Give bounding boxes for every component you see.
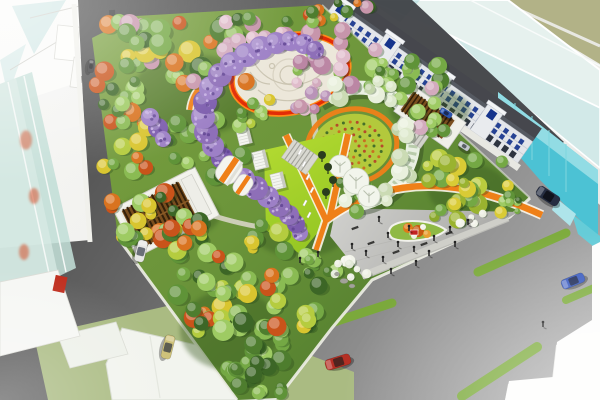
wisteria-floret [152,131,155,134]
tree-highlight [427,119,433,125]
flower-dot [381,145,384,148]
island-shrub-highlight [424,231,428,235]
tree-highlight [251,357,259,365]
tree-highlight [247,236,255,244]
pedestrian-head [542,321,545,324]
tree-highlight [340,195,348,203]
tree-highlight [439,125,446,132]
wisteria-floret-dark [280,204,283,207]
wisteria-floret [272,210,275,213]
wisteria-floret-dark [209,148,212,151]
tree-highlight [192,221,201,230]
wisteria-floret [215,74,218,77]
wisteria-floret [261,182,264,185]
flower-dot [371,139,374,142]
red-reflection [29,188,39,204]
tree-highlight [456,219,461,224]
car-hood [89,60,93,63]
rendering-canvas: Aerial perspective rendering of an urban… [0,0,600,400]
tree-highlight [218,43,227,52]
tree-highlight [504,191,510,197]
wisteria-floret [297,41,300,44]
tree-highlight [195,317,203,325]
flower-dot [377,134,380,137]
wisteria-floret [288,216,291,219]
wisteria-floret [206,99,209,102]
tree-highlight [423,174,431,182]
wisteria-floret-dark [227,150,230,153]
wisteria-floret-dark [318,47,321,50]
tree-highlight [387,82,393,88]
wisteria-floret [249,170,252,173]
wisteria-floret-dark [257,49,260,52]
wisteria-floret [211,109,214,112]
wisteria-floret-dark [207,133,210,136]
wisteria-floret-dark [232,60,235,63]
flower-dot [325,131,328,134]
wisteria-floret [287,36,290,39]
tree-highlight [365,84,371,90]
flower-dot [380,139,383,142]
tree-highlight [240,285,251,296]
wisteria-floret [287,43,290,46]
art-tree-crown [329,176,337,184]
tree-highlight [231,364,237,370]
tree-highlight [213,251,220,258]
wisteria-floret [205,139,208,142]
tree-highlight [120,59,129,68]
tree-highlight [182,157,189,164]
wisteria-floret [213,68,216,71]
tree-highlight [424,161,430,167]
wisteria-floret [214,142,217,145]
tree-highlight [97,63,108,74]
wisteria-floret-dark [268,42,271,45]
tree-highlight [143,199,151,207]
flower-dot [358,154,361,157]
flower-dot [362,122,365,125]
pedestrian-head [408,225,411,228]
tree-highlight [98,160,106,168]
tree-highlight [335,260,339,264]
wisteria-floret [310,43,313,46]
wisteria-floret-dark [283,42,286,45]
flower-dot [352,156,355,159]
wisteria-floret [272,45,275,48]
wisteria-floret-dark [291,215,294,218]
tree-highlight [239,74,248,83]
tree-highlight [261,281,270,290]
wisteria-floret [285,208,288,211]
tree-highlight [311,105,317,111]
tree-highlight [170,116,180,126]
tree-highlight [468,153,477,162]
flower-dot [380,150,383,153]
tree-highlight [181,42,193,54]
tree-highlight [506,199,511,204]
flower-dot [358,145,361,148]
flower-dot [363,130,366,133]
wisteria-floret [216,88,219,91]
tree-highlight [337,178,343,184]
wisteria-floret-dark [163,137,166,140]
tree-highlight [311,278,321,288]
tree-highlight [283,268,293,278]
flower-dot [354,149,357,152]
tree-highlight [232,378,241,387]
tree-highlight [294,56,302,64]
tree-highlight [226,254,237,265]
flower-dot [354,140,357,143]
wisteria-floret [300,49,303,52]
tree-highlight [177,76,186,85]
tree-highlight [376,67,382,73]
tree-highlight [107,83,114,90]
art-tree-crown [318,151,326,159]
tree-highlight [260,113,265,118]
wisteria-floret-dark [203,132,206,135]
tree-highlight [169,286,180,297]
tree-highlight [430,212,436,218]
pedestrian-head [413,246,416,249]
tree-highlight [379,184,387,192]
pedestrian-head [299,257,302,260]
tree-highlight [277,243,287,253]
wisteria-floret [299,234,302,237]
wisteria-floret [202,81,205,84]
tree-highlight [313,79,318,84]
flower-dot [352,133,355,136]
rock [349,284,355,288]
tree-highlight [363,270,368,275]
tree-highlight [265,95,271,101]
tree-highlight [335,62,344,71]
tree-highlight [165,221,175,231]
wisteria-floret [197,135,200,138]
tree-highlight [242,272,251,281]
tree-highlight [214,321,226,333]
tree-highlight [126,163,136,173]
rock [340,279,348,284]
tree-highlight [307,7,314,14]
art-tree-crown [322,188,330,196]
tree-highlight [370,44,378,52]
pedestrian-head [317,251,320,254]
wisteria-floret-dark [294,234,297,237]
tree-highlight [99,100,105,106]
tree-highlight [374,76,380,82]
flower-dot [344,128,347,131]
tree-highlight [306,87,313,94]
tree-highlight [131,37,140,46]
tree-highlight [157,193,163,199]
wisteria-floret-dark [317,53,320,56]
tree-highlight [336,23,345,32]
tree-highlight [105,115,114,124]
flower-dot [368,155,371,158]
wisteria-floret-dark [308,39,311,42]
tree-highlight [469,215,472,218]
tree-highlight [115,139,125,149]
pedestrian-head [382,256,385,259]
wisteria-floret [157,143,160,146]
tree-highlight [389,69,395,75]
park-masterplan-rendering: Aerial perspective rendering of an urban… [0,0,600,400]
tree-highlight [246,367,256,377]
tree-highlight [295,100,303,108]
tree-highlight [406,54,415,63]
tree-highlight [393,150,403,160]
tree-highlight [497,156,504,163]
flower-dot [363,150,366,153]
tree-highlight [399,119,408,128]
wisteria-highlight [236,45,248,57]
wisteria-floret [196,97,199,100]
wisteria-floret [229,60,232,63]
tree-highlight [342,6,349,13]
pedestrian-head [397,241,400,244]
tree-highlight [131,134,141,144]
pedestrian-head [351,243,354,246]
wisteria-floret-dark [224,62,227,65]
tree-highlight [187,75,196,84]
tree-highlight [170,153,177,160]
flower-dot [358,135,361,138]
tree-highlight [248,98,255,105]
tree-highlight [253,387,260,394]
island-shrub-highlight [421,225,424,228]
pedestrian-head [365,250,368,253]
tree-highlight [346,260,351,265]
wisteria-floret [239,60,242,63]
wisteria-floret [276,208,279,211]
tree-highlight [271,224,282,235]
tree-highlight [480,210,484,214]
tree-highlight [199,62,207,70]
tree-highlight [118,224,128,234]
flower-dot [368,125,371,128]
wisteria-floret [297,236,300,239]
wisteria-floret-dark [248,193,251,196]
tree-highlight [354,266,358,270]
wisteria-floret [149,111,152,114]
tree-highlight [178,236,186,244]
flower-dot [368,164,371,167]
tree-highlight [426,82,434,90]
wisteria-floret [151,127,154,130]
red-reflection [19,244,29,260]
tree-highlight [101,17,111,27]
tree-highlight [119,25,129,35]
tree-highlight [151,34,164,47]
wisteria-floret-dark [211,92,214,95]
tree-highlight [382,196,388,202]
tree-highlight [232,34,241,43]
tree-highlight [167,55,177,65]
tree-highlight [132,153,139,160]
tree-highlight [205,36,213,44]
tree-highlight [503,181,509,187]
pedestrian-head [387,232,390,235]
wisteria-floret-dark [290,38,293,41]
flower-dot [373,145,376,148]
tree-highlight [379,59,385,65]
tree-highlight [215,311,225,321]
tree-highlight [400,129,409,138]
flower-dot [330,127,333,130]
wisteria-floret [294,34,297,37]
tree-highlight [447,174,454,181]
pedestrian-head [433,235,436,238]
flower-dot [373,129,376,132]
tree-highlight [177,209,186,218]
wisteria-highlight [282,33,292,43]
wisteria-floret [308,55,311,58]
tree-highlight [496,207,503,214]
tree-highlight [174,17,182,25]
pedestrian-head [467,219,470,222]
flower-dot [363,159,366,162]
wisteria-floret [213,79,216,82]
pedestrian-head [378,216,381,219]
flower-dot [373,160,376,163]
tree-highlight [116,97,124,105]
tree-highlight [431,58,441,68]
tree-highlight [266,269,274,277]
flower-dot [356,121,359,124]
flower-dot [368,134,371,137]
tree-highlight [348,274,352,278]
flower-dot [338,130,341,133]
tree-highlight [235,147,245,157]
wisteria-floret-dark [206,104,209,107]
tree-highlight [450,198,457,205]
tree-highlight [130,77,136,83]
pedestrian-head [449,226,452,229]
wisteria-floret [260,46,263,49]
tree-highlight [199,274,209,284]
flower-dot [362,167,365,170]
flower-dot [357,128,360,131]
tree-highlight [293,78,299,84]
flower-dot [336,124,339,127]
tree-highlight [324,267,329,272]
wisteria-floret [282,219,285,222]
wisteria-floret-dark [204,115,207,118]
wisteria-floret [285,217,288,220]
tree-highlight [321,91,327,97]
tree-highlight [243,13,251,21]
tree-highlight [429,97,436,104]
tree-highlight [178,268,186,276]
wisteria-floret [214,162,217,165]
pedestrian-head [390,268,393,271]
pedestrian-head [454,241,457,244]
wisteria-floret-dark [304,37,307,40]
wisteria-floret-dark [243,60,246,63]
wisteria-floret-dark [153,114,156,117]
flower-dot [351,127,354,130]
flower-dot [371,150,374,153]
tree-highlight [169,206,175,212]
wisteria-floret-dark [206,87,209,90]
flower-dot [365,145,368,148]
tree-highlight [282,17,288,23]
tree-highlight [246,336,256,346]
wisteria-floret-dark [292,227,295,230]
tree-highlight [106,195,115,204]
flower-dot [377,155,380,158]
tree-highlight [276,388,283,395]
wisteria-floret [270,40,273,43]
tree-highlight [235,313,246,324]
tree-highlight [132,92,140,100]
wisteria-floret-dark [159,139,162,142]
flower-dot [349,121,352,124]
rock [335,272,340,276]
wisteria-floret-dark [270,197,273,200]
wisteria-floret [261,187,264,190]
flower-dot [342,122,345,125]
tree-highlight [151,20,163,32]
tree-highlight [237,108,243,114]
tree-highlight [199,244,210,255]
tree-highlight [412,105,420,113]
wisteria-floret-dark [216,67,219,70]
wisteria-floret [194,116,197,119]
tree-highlight [220,16,228,24]
wisteria-floret [233,66,236,69]
wisteria-floret [257,53,260,56]
tree-highlight [217,287,226,296]
tree-highlight [328,77,337,86]
flower-dot [363,139,366,142]
flower-dot [357,161,360,164]
tree-highlight [90,78,99,87]
pedestrian-head [428,250,431,253]
tree-highlight [302,313,311,322]
tree-highlight [187,303,196,312]
wisteria-floret [194,123,197,126]
wisteria-floret [145,111,148,114]
wisteria-floret [256,43,259,46]
wisteria-floret-dark [267,201,270,204]
tree-highlight [271,294,280,303]
wisteria-floret [198,138,201,141]
tree-highlight [515,209,518,212]
tree-highlight [440,155,450,165]
tree-highlight [305,256,310,261]
tree-highlight [400,78,410,88]
tree-highlight [305,269,311,275]
tree-highlight [436,205,443,212]
tree-highlight [131,214,140,223]
tree-highlight [233,14,240,21]
wisteria-floret [204,93,207,96]
pedestrian-head [415,260,418,263]
wisteria-floret-dark [206,146,209,149]
tree-highlight [460,178,466,184]
tree-highlight [109,159,115,165]
tree-highlight [269,318,280,329]
wisteria-floret-dark [150,117,153,120]
art-tree-crown [324,163,332,171]
tree-highlight [242,357,250,365]
tree-highlight [122,50,130,58]
tree-highlight [331,14,336,19]
red-reflection [20,130,32,149]
wisteria-floret [167,141,170,144]
